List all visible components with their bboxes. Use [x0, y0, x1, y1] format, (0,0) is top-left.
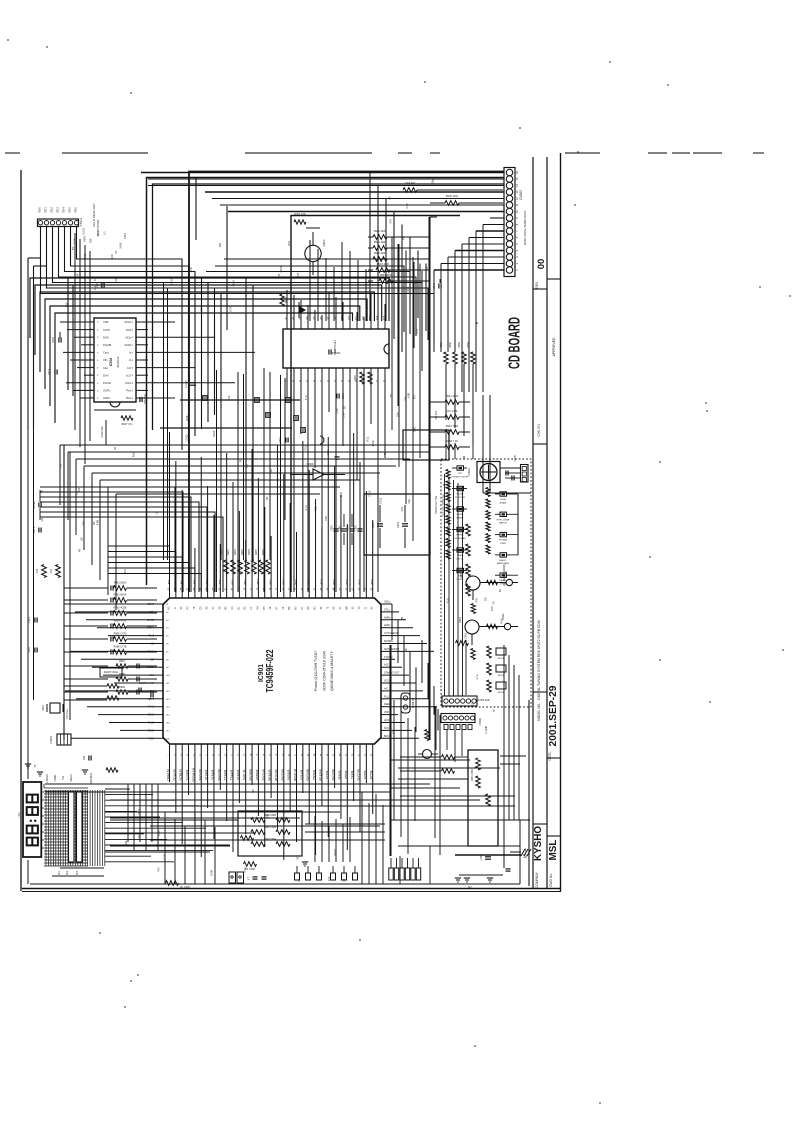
svg-text:SONY FOR+/TERM HOLD: SONY FOR+/TERM HOLD: [523, 211, 527, 246]
svg-text:QA93F/UMS-4 MALETY: QA93F/UMS-4 MALETY: [330, 650, 334, 691]
svg-text:Q903: Q903: [322, 239, 326, 246]
svg-text:KYSHO: KYSHO: [532, 826, 544, 861]
svg-text:S03: S03: [77, 870, 79, 875]
svg-text:XT: XT: [402, 236, 406, 240]
svg-text:Cexx: Cexx: [103, 351, 110, 355]
svg-text:DOA: DOA: [125, 381, 131, 385]
svg-text:0.1: 0.1: [102, 231, 106, 235]
svg-text:100K: 100K: [118, 242, 122, 248]
svg-text:C952: C952: [397, 521, 400, 528]
svg-text:XIN: XIN: [103, 358, 107, 362]
svg-text:CN9: CN9: [341, 412, 345, 418]
svg-text:SLP4/B: SLP4/B: [186, 770, 190, 781]
svg-text:AB12: AB12: [244, 579, 247, 585]
svg-text:RA5: RA5: [73, 238, 77, 244]
svg-text:R921 100K: R921 100K: [374, 241, 387, 244]
svg-text:AB18: AB18: [282, 579, 285, 585]
svg-text:IC902: IC902: [109, 358, 113, 367]
svg-text:S14A/B: S14A/B: [236, 770, 240, 781]
svg-text:R983 T984: R983 T984: [264, 838, 276, 841]
svg-text:R962: R962: [235, 549, 237, 555]
svg-text:2001.SEP-29: 2001.SEP-29: [548, 685, 559, 746]
svg-text:CN9: CN9: [335, 408, 339, 414]
svg-text:DIGITAL TUNING SYSTEM RDS UNIT: DIGITAL TUNING SYSTEM RDS UNIT2 52-PB CD…: [537, 620, 541, 700]
svg-text:T60a/B: T60a/B: [313, 770, 317, 780]
svg-text:BEAP/B: BEAP/B: [319, 769, 323, 781]
svg-text:C919 330: C919 330: [100, 426, 104, 438]
svg-text:4R7: 4R7: [50, 568, 53, 573]
svg-text:CTLo: CTLo: [384, 608, 391, 611]
svg-text:B1: B1: [391, 730, 395, 734]
svg-text:KTA: KTA: [200, 306, 204, 311]
svg-text:C910: C910: [51, 336, 55, 343]
svg-text:XT: XT: [247, 877, 251, 881]
svg-text:CLPO: CLPO: [103, 328, 110, 332]
svg-text:R931: R931: [354, 374, 357, 380]
svg-text:B1: B1: [92, 521, 96, 525]
svg-text:AB26: AB26: [333, 579, 336, 585]
svg-text:R962 5K0A: R962 5K0A: [114, 594, 127, 597]
svg-text:47K: 47K: [415, 329, 419, 334]
svg-text:AB10: AB10: [231, 579, 234, 585]
svg-text:AB16: AB16: [269, 579, 272, 585]
svg-text:CN9-2: CN9-2: [79, 217, 83, 226]
svg-text:SG1: SG1: [44, 207, 48, 213]
svg-text:TB/ON KEY SW: TB/ON KEY SW: [435, 495, 438, 514]
svg-text:DOA: DOA: [103, 335, 109, 339]
svg-text:CN906: CN906: [479, 718, 482, 726]
svg-text:100K: 100K: [371, 440, 375, 446]
svg-text:STA/DxT-OUT: STA/DxT-OUT: [384, 672, 400, 675]
svg-text:KEYBd SAB: KEYBd SAB: [476, 699, 490, 702]
svg-text:CN901: CN901: [519, 190, 523, 200]
svg-text:VDD: VDD: [384, 711, 389, 714]
svg-text:R77: R77: [412, 394, 416, 399]
svg-text:T24A/B: T24A/B: [230, 770, 234, 781]
svg-text:22p: 22p: [407, 499, 411, 504]
svg-text:VR901: VR901: [468, 468, 471, 476]
svg-text:AB28: AB28: [345, 579, 348, 585]
svg-text:DOo: DOo: [126, 335, 132, 339]
svg-text:C901: C901: [406, 286, 410, 293]
svg-text:S62A/B: S62A/B: [287, 770, 291, 781]
svg-text:BU2614: BU2614: [116, 356, 120, 367]
svg-text:R961: R961: [228, 549, 230, 555]
svg-text:C960: C960: [332, 525, 334, 531]
svg-text:CUBE: CUBE: [500, 499, 507, 501]
svg-text:IC906 SB: IC906 SB: [412, 697, 415, 708]
svg-text:FB: FB: [265, 496, 269, 500]
svg-text:FB: FB: [245, 464, 249, 468]
svg-text:OPEN/MAIL: OPEN/MAIL: [454, 537, 467, 540]
svg-text:D91: D91: [287, 240, 291, 245]
svg-text:1K: 1K: [113, 447, 117, 450]
svg-text:00: 00: [536, 259, 547, 270]
svg-text:TC9459F-022: TC9459F-022: [265, 649, 276, 692]
svg-text:RA5: RA5: [131, 452, 135, 458]
svg-text:CD BOARD: CD BOARD: [507, 317, 524, 369]
svg-text:PLAY/TWI: PLAY/TWI: [455, 496, 465, 499]
svg-text:DoS: DoS: [126, 328, 131, 332]
svg-text:S12A/B: S12A/B: [205, 770, 209, 781]
svg-text:SG2: SG2: [50, 207, 54, 213]
svg-text:DI-N: DI-N: [103, 373, 108, 377]
svg-text:S02: S02: [67, 870, 69, 875]
svg-text:B77/B: B77/B: [370, 771, 374, 780]
svg-text:COMPANY: COMPANY: [535, 871, 539, 888]
svg-text:10K: 10K: [89, 238, 93, 243]
svg-text:C963: C963: [356, 525, 358, 531]
svg-text:KEDOT AVAIL: KEDOT AVAIL: [104, 671, 119, 674]
svg-text:FB: FB: [277, 274, 281, 278]
svg-text:470: 470: [123, 568, 127, 573]
svg-text:R961 500A: R961 500A: [114, 582, 127, 585]
svg-text:SG6: SG6: [74, 207, 78, 213]
svg-text:R965: R965: [256, 549, 258, 555]
svg-text:R965 C4T0: R965 C4T0: [114, 633, 127, 636]
svg-text:1SS: 1SS: [470, 702, 474, 707]
svg-text:AB22: AB22: [307, 579, 310, 585]
svg-text:470: 470: [383, 451, 387, 456]
svg-text:B1: B1: [498, 588, 502, 592]
svg-text:CN9: CN9: [93, 284, 97, 290]
svg-text:SG3: SG3: [56, 207, 60, 213]
svg-text:R12: R12: [64, 302, 68, 307]
svg-text:4.7u: 4.7u: [475, 674, 479, 680]
svg-text:B1: B1: [389, 393, 393, 397]
svg-text:R12: R12: [366, 436, 370, 441]
svg-text:CN9: CN9: [189, 267, 193, 273]
svg-text:REV.: REV.: [535, 281, 539, 288]
svg-text:R966 C77B: R966 C77B: [114, 646, 127, 649]
svg-text:470: 470: [327, 876, 331, 881]
svg-text:AM KEY: AM KEY: [435, 410, 438, 419]
svg-text:COM3: COM3: [55, 774, 57, 781]
svg-text:R991 C994: R991 C994: [471, 768, 474, 781]
svg-text:X901: X901: [42, 704, 45, 710]
svg-text:FB: FB: [483, 597, 487, 601]
svg-text:S23/B: S23/B: [363, 771, 367, 780]
svg-text:IC901: IC901: [256, 664, 265, 682]
svg-text:SD/Tun/MONI: SD/Tun/MONI: [384, 648, 399, 651]
svg-text:47K: 47K: [400, 506, 404, 511]
svg-text:DO-C: DO-C: [384, 727, 390, 730]
svg-text:SW 51: SW 51: [515, 454, 517, 462]
svg-text:4053N: 4053N: [332, 351, 341, 355]
svg-text:R919: R919: [212, 430, 216, 437]
svg-text:S71/B: S71/B: [325, 771, 329, 780]
svg-text:xCO: xCO: [126, 373, 131, 377]
svg-text:0.022: 0.022: [170, 278, 174, 285]
svg-text:22p: 22p: [431, 179, 435, 184]
svg-text:POWER ON/OFF: POWER ON/OFF: [451, 476, 469, 478]
svg-text:33K: 33K: [124, 840, 128, 845]
svg-text:LSEG01: LSEG01: [47, 773, 49, 782]
svg-text:C947 47u: C947 47u: [144, 393, 147, 404]
svg-text:Q9: Q9: [251, 789, 255, 793]
svg-text:R919: R919: [333, 849, 337, 856]
svg-text:R919: R919: [232, 280, 236, 287]
svg-text:SEG9/B: SEG9/B: [306, 769, 310, 781]
svg-text:C912: C912: [137, 808, 141, 815]
svg-text:SCB1/B: SCB1/B: [179, 769, 183, 780]
svg-text:RA5: RA5: [499, 618, 503, 624]
svg-text:DATE.: DATE.: [548, 751, 552, 760]
svg-text:BEA1/B: BEA1/B: [268, 769, 272, 780]
svg-text:R951: R951: [440, 341, 443, 347]
svg-text:KTA: KTA: [99, 282, 103, 287]
svg-text:Q952: Q952: [459, 616, 462, 623]
svg-text:AB30: AB30: [358, 579, 361, 585]
svg-text:MSL: MSL: [547, 839, 559, 861]
svg-text:R953: R953: [458, 341, 461, 347]
svg-text:DBA1/B: DBA1/B: [167, 769, 171, 780]
svg-text:RA5: RA5: [163, 854, 167, 860]
svg-text:RA5: RA5: [157, 830, 161, 836]
svg-text:B1: B1: [71, 246, 75, 250]
svg-text:S42L/B: S42L/B: [243, 770, 247, 780]
svg-text:SET/TL: SET/TL: [456, 558, 464, 560]
svg-text:DO/A: DO/A: [125, 320, 132, 324]
svg-text:1K: 1K: [40, 490, 44, 493]
svg-text:1SS: 1SS: [490, 606, 494, 611]
svg-text:VCPU: VCPU: [103, 389, 110, 393]
svg-text:47K: 47K: [475, 598, 479, 603]
svg-text:PxLVD: PxLVD: [103, 381, 111, 385]
svg-text:S55/B: S55/B: [344, 771, 348, 780]
svg-text:470: 470: [388, 278, 392, 283]
svg-text:4.7u: 4.7u: [304, 395, 308, 401]
svg-text:L904 4R7: L904 4R7: [405, 182, 416, 185]
svg-text:FB: FB: [78, 548, 82, 552]
svg-text:C912: C912: [303, 444, 307, 451]
svg-text:PAUSE: PAUSE: [456, 493, 464, 496]
svg-text:R901: R901: [83, 235, 87, 242]
svg-text:S16B/B: S16B/B: [255, 770, 259, 781]
svg-text:R967: R967: [119, 660, 125, 663]
svg-text:C95: C95: [83, 755, 86, 760]
svg-text:JPT/: JPT/: [458, 473, 463, 475]
svg-text:CN9: CN9: [243, 867, 247, 873]
svg-text:10K: 10K: [93, 276, 97, 281]
svg-text:SG5: SG5: [68, 207, 72, 213]
svg-text:C+4.7u: C+4.7u: [185, 379, 188, 387]
svg-text:FB: FB: [266, 814, 270, 818]
svg-text:MODEL NO.: MODEL NO.: [537, 703, 541, 721]
svg-text:AMPo: AMPo: [384, 616, 391, 619]
svg-text:R901: R901: [279, 266, 283, 273]
svg-text:Q9: Q9: [79, 537, 83, 541]
svg-text:C901: C901: [464, 632, 468, 639]
svg-text:SG0: SG0: [38, 207, 42, 213]
svg-text:R922 100K: R922 100K: [374, 252, 387, 255]
svg-text:R920 100K: R920 100K: [374, 230, 387, 233]
svg-text:R941 100K: R941 100K: [446, 395, 459, 398]
svg-text:R917 47u: R917 47u: [122, 423, 133, 426]
svg-text:CN9: CN9: [405, 203, 409, 209]
svg-text:AFMo: AFMo: [384, 624, 391, 627]
svg-text:RA5: RA5: [296, 272, 300, 278]
svg-text:Q9: Q9: [40, 517, 44, 521]
svg-text:0.022: 0.022: [82, 227, 86, 234]
svg-text:A/JAM: A/JAM: [500, 501, 507, 504]
svg-text:1SS: 1SS: [326, 450, 330, 455]
svg-text:AB32: AB32: [371, 579, 374, 585]
svg-text:O: O: [129, 358, 131, 362]
svg-text:C912: C912: [379, 497, 383, 504]
svg-text:4.7u: 4.7u: [446, 597, 450, 603]
svg-text:D91: D91: [218, 242, 222, 247]
svg-text:BM-C: BM-C: [384, 735, 390, 738]
svg-text:S01: S01: [59, 870, 61, 875]
svg-text:R923 100K: R923 100K: [377, 263, 390, 266]
svg-text:AB24: AB24: [320, 579, 323, 585]
svg-text:CN9: CN9: [227, 395, 231, 401]
svg-text:C901: C901: [123, 232, 127, 239]
svg-text:0.022: 0.022: [306, 479, 310, 486]
svg-text:PRESS: PRESS: [456, 535, 464, 537]
svg-text:470: 470: [389, 219, 393, 224]
svg-text:11M TxxL: 11M TxxL: [66, 708, 69, 719]
svg-text:T5A: T5A: [62, 775, 65, 780]
svg-text:AB20: AB20: [295, 579, 298, 585]
svg-text:R943 T66A: R943 T66A: [446, 425, 459, 428]
svg-text:VDD: VDD: [103, 320, 109, 324]
svg-text:33K: 33K: [412, 427, 416, 432]
svg-text:1SS: 1SS: [114, 278, 118, 283]
svg-text:C912: C912: [47, 368, 51, 375]
svg-text:B-C: B-C: [468, 886, 472, 889]
svg-text:FB: FB: [425, 266, 429, 270]
svg-text:SEG1/B: SEG1/B: [262, 769, 266, 781]
svg-text:GIOD: GIOD: [124, 343, 131, 347]
svg-text:R940 100u: R940 100u: [446, 195, 459, 198]
svg-text:DWG No.: DWG No.: [549, 873, 553, 887]
svg-text:KTA: KTA: [228, 306, 232, 311]
svg-text:B1: B1: [400, 616, 404, 620]
svg-text:R919: R919: [77, 486, 81, 493]
svg-text:R969: R969: [119, 686, 125, 689]
svg-text:GT/TUNE/AM: GT/TUNE/AM: [384, 632, 399, 635]
svg-text:6.8K: 6.8K: [185, 415, 189, 421]
svg-text:R77: R77: [137, 832, 141, 837]
svg-text:R12: R12: [314, 506, 318, 511]
svg-text:SEG12: SEG12: [71, 774, 73, 782]
svg-text:SEG/BLK1: SEG/BLK1: [91, 772, 93, 784]
svg-text:S01x/B: S01x/B: [300, 770, 304, 780]
svg-text:4.7u: 4.7u: [304, 505, 308, 511]
svg-text:R952: R952: [449, 341, 452, 347]
svg-text:T21A/B: T21A/B: [224, 770, 228, 781]
svg-text:33K: 33K: [295, 855, 299, 860]
svg-text:SDA1/B: SDA1/B: [173, 769, 177, 780]
svg-text:BEM1/B: BEM1/B: [294, 769, 298, 781]
svg-text:33K: 33K: [269, 469, 273, 474]
svg-text:PxA: PxA: [126, 389, 131, 393]
svg-text:SG4: SG4: [62, 207, 66, 213]
svg-text:VDVF CON+2TV/LP 2040: VDVF CON+2TV/LP 2040: [323, 651, 327, 691]
svg-text:R966: R966: [263, 549, 265, 555]
svg-text:(48 KEY BOARD): (48 KEY BOARD): [502, 564, 506, 586]
svg-text:2SC: 2SC: [96, 230, 100, 235]
svg-text:Q9: Q9: [412, 280, 416, 284]
svg-text:GND-I: GND-I: [103, 396, 111, 400]
svg-text:470: 470: [36, 568, 39, 573]
svg-text:RADIO: RADIO: [500, 559, 507, 562]
svg-text:TRU/BR: TRU/BR: [499, 540, 508, 542]
svg-text:C912: C912: [185, 434, 189, 441]
svg-text:SEG5/B: SEG5/B: [281, 769, 285, 781]
svg-text:6.8K: 6.8K: [406, 392, 410, 398]
svg-text:AM-D: AM-D: [384, 719, 390, 722]
svg-text:R924 100K: R924 100K: [380, 274, 393, 277]
svg-text:SEG3/B: SEG3/B: [332, 769, 336, 781]
svg-text:CN904: CN904: [50, 736, 53, 744]
svg-text:I=O: I=O: [384, 687, 388, 690]
svg-text:22p: 22p: [395, 412, 399, 417]
svg-text:R963: R963: [242, 549, 244, 555]
svg-text:CHK 97L: CHK 97L: [537, 423, 541, 436]
svg-text:FB: FB: [75, 273, 79, 277]
svg-text:CN9: CN9: [339, 492, 343, 498]
svg-text:T41/B: T41/B: [351, 771, 355, 780]
svg-text:IxO: IxO: [127, 366, 131, 370]
svg-text:SEG8/B: SEG8/B: [249, 769, 253, 781]
svg-text:10K: 10K: [110, 254, 114, 259]
svg-text:1K: 1K: [404, 648, 408, 651]
svg-text:C1C C35F: C1C C35F: [446, 410, 458, 413]
svg-text:B09/B: B09/B: [338, 771, 342, 780]
svg-text:SEG7/B: SEG7/B: [357, 769, 361, 781]
svg-text:CE-I: CE-I: [103, 366, 108, 370]
svg-text:BDY2/B: BDY2/B: [274, 769, 278, 780]
svg-text:R944 7.2K: R944 7.2K: [446, 440, 458, 443]
svg-text:IC903: IC903: [307, 463, 314, 466]
svg-text:OSCo: OSCo: [384, 601, 391, 604]
svg-text:BxA: BxA: [126, 396, 131, 400]
svg-text:C912: C912: [367, 490, 371, 497]
svg-text:33K: 33K: [81, 521, 85, 526]
svg-text:R911 10K: R911 10K: [294, 212, 306, 216]
svg-text:APPROVED: APPROVED: [552, 337, 556, 356]
svg-text:SEG4/B: SEG4/B: [198, 769, 202, 781]
svg-text:TP: TP: [34, 764, 37, 767]
svg-text:C+GND: C+GND: [486, 726, 488, 734]
svg-text:SEG2/B: SEG2/B: [217, 769, 221, 781]
svg-text:FB: FB: [238, 459, 242, 463]
svg-text:R964: R964: [249, 549, 251, 555]
svg-text:Power Q111/7HH TV187: Power Q111/7HH TV187: [314, 651, 318, 691]
svg-text:XT: XT: [114, 250, 118, 254]
svg-text:MONEN: MONEN: [384, 640, 393, 643]
svg-text:R963 4C0B: R963 4C0B: [114, 607, 127, 610]
svg-text:R982 C981: R982 C981: [264, 826, 277, 829]
svg-text:LCD: LCD: [18, 812, 21, 817]
svg-text:R954: R954: [467, 341, 470, 347]
svg-text:SEGM1/B: SEGM1/B: [192, 768, 196, 782]
svg-text:PWR+/STAR: PWR+/STAR: [497, 518, 510, 521]
svg-text:470: 470: [157, 867, 161, 872]
svg-text:S13A/B: S13A/B: [211, 770, 215, 781]
svg-text:100K: 100K: [209, 870, 213, 876]
svg-text:10/KE: 10/KE: [500, 543, 506, 545]
svg-text:MARCH: MARCH: [499, 522, 507, 525]
svg-text:PLLDB: PLLDB: [103, 343, 111, 347]
svg-text:6.8K: 6.8K: [96, 520, 100, 526]
svg-text:PLL1: PLL1: [384, 695, 390, 698]
svg-text:R960: R960: [221, 549, 223, 555]
svg-text:AB14: AB14: [256, 579, 259, 585]
